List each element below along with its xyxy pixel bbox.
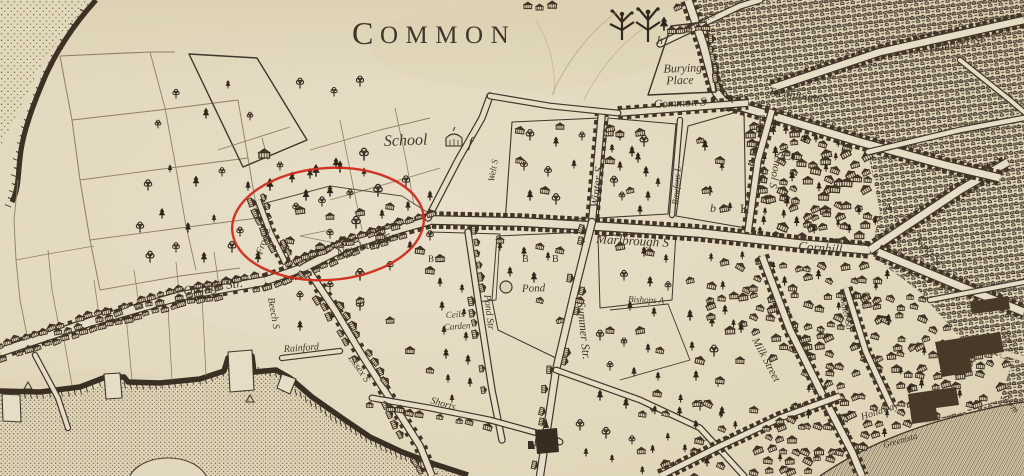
svg-text:E: E	[758, 112, 766, 127]
svg-text:OMMON: OMMON	[380, 22, 516, 49]
svg-text:Carden: Carden	[443, 320, 471, 332]
svg-text:C: C	[352, 15, 375, 51]
svg-text:B: B	[522, 254, 529, 265]
svg-text:Place: Place	[665, 73, 694, 88]
svg-text:Bishops A: Bishops A	[628, 294, 665, 305]
svg-text:K: K	[740, 201, 750, 216]
svg-text:A: A	[884, 200, 894, 215]
svg-text:C: C	[783, 149, 791, 163]
svg-text:Pond: Pond	[521, 282, 546, 295]
svg-text:h: h	[657, 33, 663, 47]
svg-text:Common S: Common S	[653, 94, 706, 111]
svg-text:School: School	[384, 131, 429, 150]
svg-text:b: b	[710, 201, 716, 215]
svg-text:Ceils: Ceils	[445, 309, 465, 320]
svg-text:B: B	[552, 254, 559, 265]
svg-text:G: G	[862, 289, 871, 303]
svg-text:B: B	[428, 254, 434, 264]
